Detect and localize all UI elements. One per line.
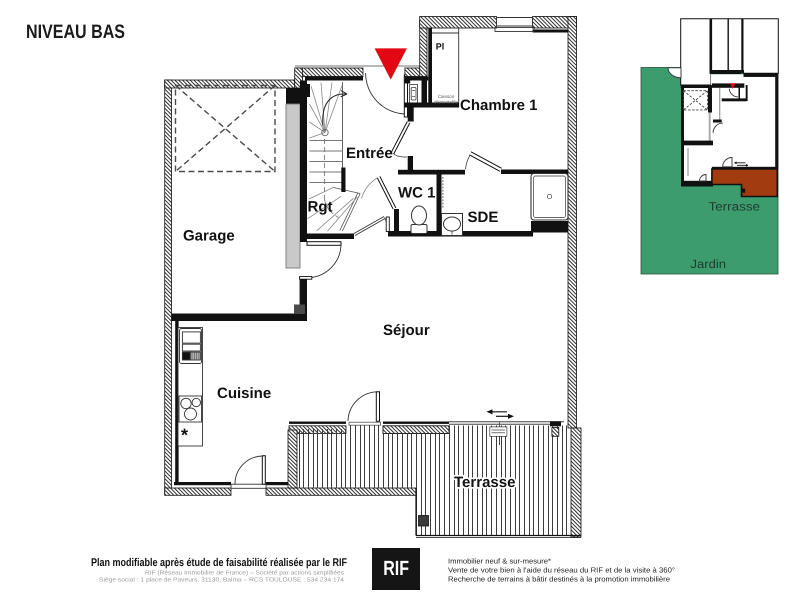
svg-text:Recherche de terrains à bâtir: Recherche de terrains à bâtir destinés à… [448,575,670,584]
svg-text:*: * [181,425,188,445]
svg-text:Terrasse: Terrasse [454,474,515,491]
svg-text:RIF: RIF [383,557,409,580]
svg-text:Caisson: Caisson [438,94,455,99]
svg-text:Garage: Garage [183,228,235,245]
svg-text:Terrasse: Terrasse [709,200,761,214]
svg-text:Séjour: Séjour [383,322,430,339]
svg-text:Vente de votre bien à l'aide d: Vente de votre bien à l'aide du réseau d… [448,566,675,575]
svg-text:Siège social : 1 place de Pave: Siège social : 1 place de Paveurs, 31130… [99,576,345,583]
svg-text:Chambre 1: Chambre 1 [460,97,538,114]
svg-text:RIF (Réseau Immobilier de Fran: RIF (Réseau Immobilier de France) – Soci… [145,570,344,577]
svg-text:Plan modifiable après étude de: Plan modifiable après étude de faisabili… [91,557,347,569]
svg-text:Pl: Pl [436,42,445,52]
svg-text:Jardin: Jardin [691,257,727,271]
svg-text:Immobilier neuf & sur-mesure*: Immobilier neuf & sur-mesure* [448,557,551,566]
svg-text:Cuisine: Cuisine [217,385,271,402]
svg-text:démontable: démontable [434,100,458,105]
svg-text:WC 1: WC 1 [398,185,436,202]
svg-text:Rgt: Rgt [308,199,333,216]
svg-text:NIVEAU BAS: NIVEAU BAS [26,21,125,43]
svg-text:Entrée: Entrée [346,145,393,162]
svg-text:SDE: SDE [468,209,499,226]
